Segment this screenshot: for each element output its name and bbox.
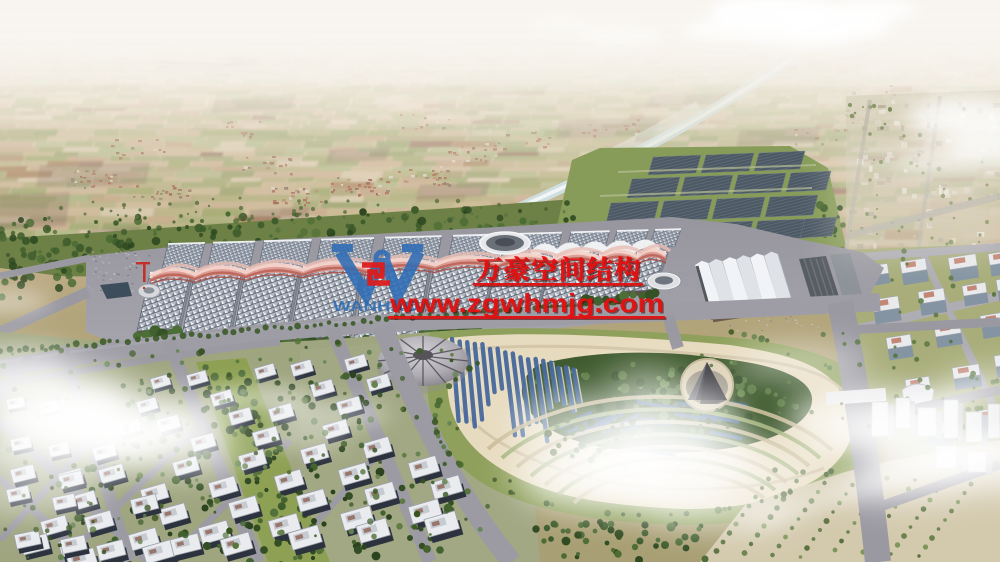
svg-text:www.zgwhmjg.com: www.zgwhmjg.com — [389, 288, 664, 318]
